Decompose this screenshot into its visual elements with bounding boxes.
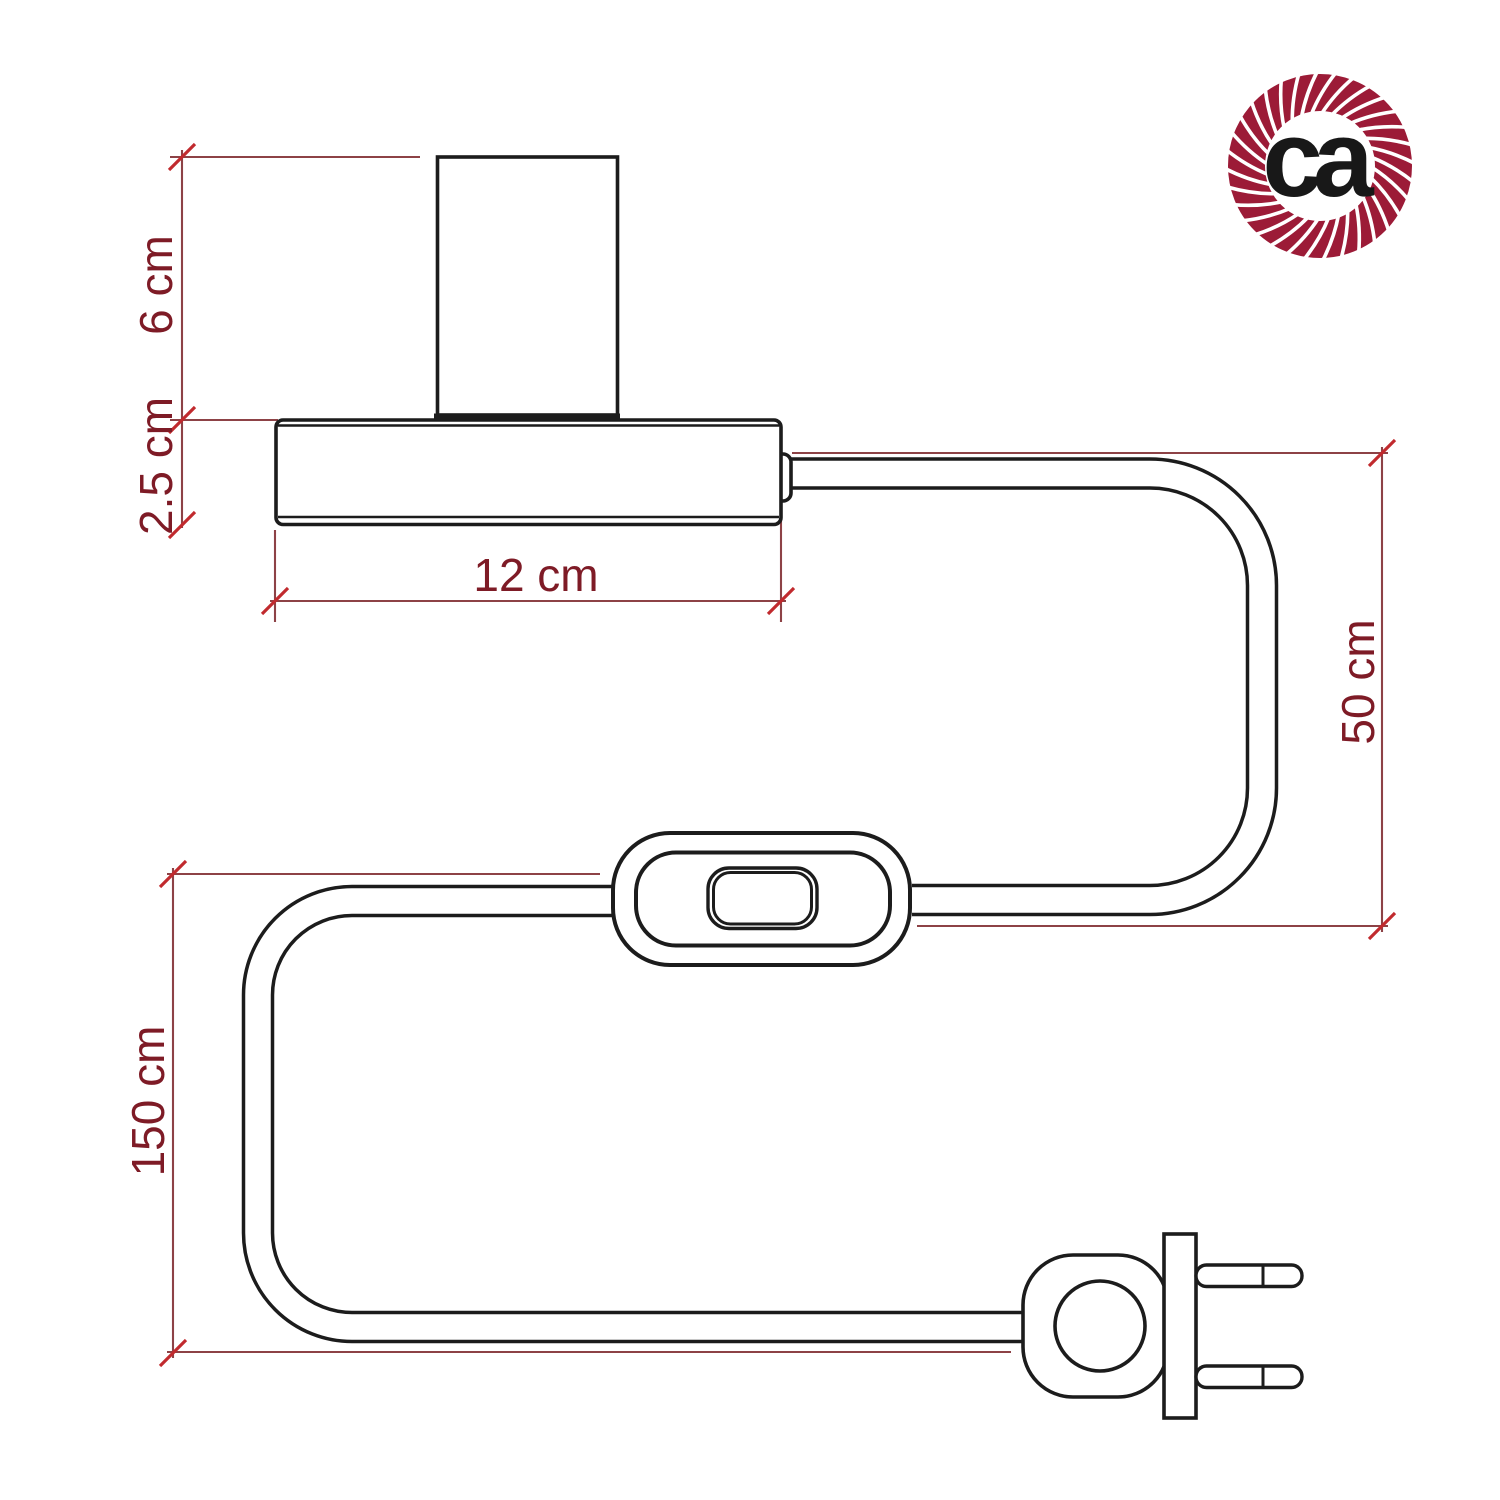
svg-text:50 cm: 50 cm — [1332, 619, 1384, 744]
svg-text:6 cm: 6 cm — [130, 235, 182, 335]
svg-text:12 cm: 12 cm — [473, 549, 598, 601]
svg-text:2.5 cm: 2.5 cm — [130, 397, 182, 535]
svg-text:ca: ca — [1262, 98, 1375, 220]
svg-text:150 cm: 150 cm — [122, 1026, 174, 1177]
